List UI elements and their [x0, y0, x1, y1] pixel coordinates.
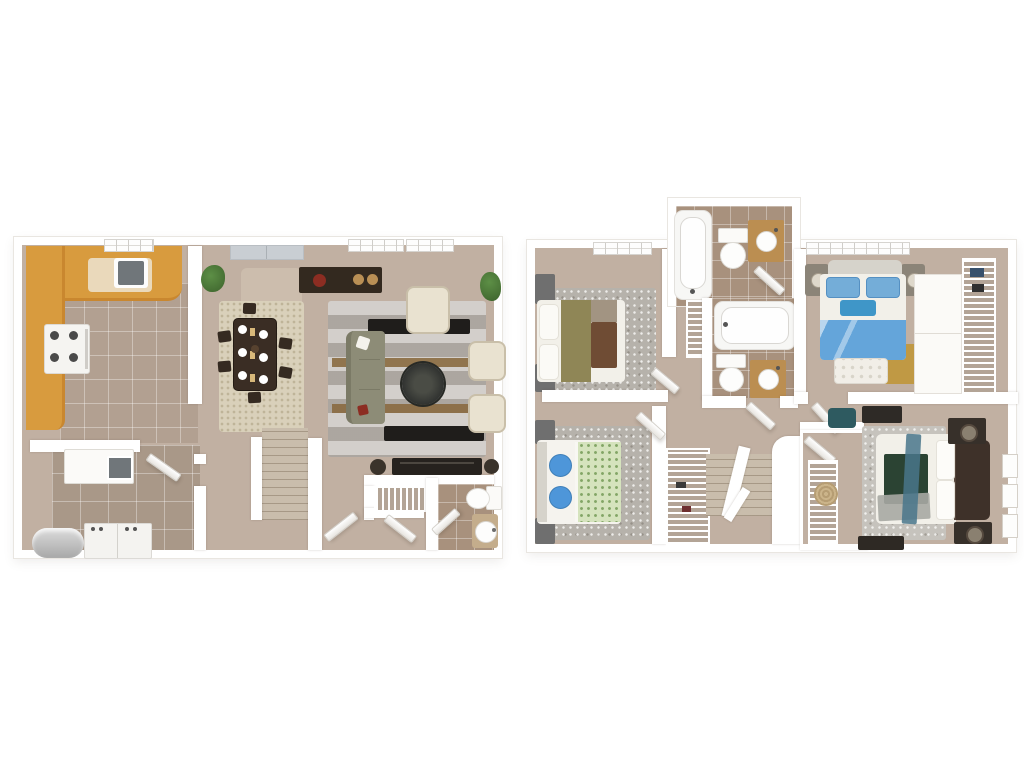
plate — [238, 348, 247, 357]
blue-blanket — [820, 320, 906, 360]
dresser — [858, 536, 904, 550]
dining-chair — [278, 337, 292, 350]
stove-burner — [69, 331, 78, 340]
napkin — [250, 328, 255, 336]
decor-jar — [367, 274, 378, 285]
taupe-accent-pillows — [591, 300, 617, 322]
tub-faucet — [723, 322, 728, 327]
lamp — [960, 424, 978, 442]
staircase-up — [262, 428, 308, 520]
sliding-glass-door — [230, 245, 304, 260]
plate — [259, 330, 268, 339]
folded-clothes — [970, 268, 984, 277]
bathtub-vertical — [674, 210, 712, 300]
utility-counter — [64, 449, 134, 484]
potted-plant-dining — [201, 265, 225, 292]
bathtub-horizontal — [714, 301, 796, 350]
bathtub-basin — [680, 217, 706, 289]
olive-blanket — [561, 300, 591, 382]
second-floor-plan — [527, 240, 1016, 552]
bedroom2-closet-wire-shelf — [962, 258, 996, 396]
appliance-knob — [133, 527, 137, 531]
bedroom1-bed — [537, 300, 625, 382]
armchair-right-2 — [468, 394, 506, 433]
teal-chair — [828, 408, 856, 428]
wall-stub — [794, 392, 808, 404]
stairwell-wall — [772, 436, 800, 544]
stove-burner — [69, 353, 78, 362]
bathtub-basin — [721, 307, 789, 344]
sink-faucet — [492, 528, 496, 532]
appliance-knob — [125, 527, 129, 531]
wall-frame — [1002, 484, 1018, 508]
living-console — [299, 267, 382, 293]
dining-chair — [278, 366, 293, 379]
bedroom1-window — [593, 242, 652, 255]
utility-sink — [107, 456, 133, 480]
laundry-hall-wall — [194, 486, 206, 550]
bed-pillow — [539, 344, 559, 380]
stove — [44, 324, 90, 374]
bathroom2-vanity — [750, 360, 786, 398]
teal-accent-pillow — [840, 300, 876, 316]
round-coffee-table — [402, 363, 444, 405]
bedroom3-bed — [537, 440, 621, 524]
vanity-faucet — [776, 366, 780, 370]
shoes — [676, 482, 686, 488]
living-window-2 — [406, 239, 454, 252]
bath-hall-wall — [426, 478, 438, 550]
lamp — [966, 526, 984, 544]
plate — [238, 325, 247, 334]
hall-bathroom — [668, 198, 800, 306]
bed-pillow — [936, 480, 955, 520]
bedroom4-bed — [876, 432, 990, 526]
kitchen-sink-surround — [114, 258, 148, 288]
wall-frame — [1002, 454, 1018, 478]
blue-pillow — [866, 277, 900, 298]
kitchen-sink-basin — [118, 261, 144, 285]
toilet-bowl — [720, 242, 746, 269]
toilet-bowl — [719, 367, 744, 392]
bath2-bottom-wall-left — [702, 396, 746, 408]
blue-pillow — [549, 486, 572, 509]
appliance-knob — [91, 527, 95, 531]
bedroom2-bed — [820, 274, 906, 360]
folded-clothes — [972, 284, 984, 292]
speaker-stool-right — [484, 459, 499, 474]
tv-screen-edge — [400, 462, 474, 464]
bedroom2-headboard — [828, 260, 902, 275]
woven-basket — [814, 482, 838, 506]
bedroom4-headboard — [954, 440, 990, 520]
decor-jar — [353, 274, 364, 285]
blue-pillow — [549, 454, 572, 477]
sofa-cushion-seam — [359, 389, 380, 390]
wall-frame — [1002, 514, 1018, 538]
hall-closet-wire-shelf — [666, 448, 710, 546]
toilet-tank — [716, 354, 746, 368]
dining-chair — [218, 360, 232, 372]
toilet-bowl — [466, 488, 490, 509]
washer-dryer-divider — [117, 524, 118, 558]
bathroom-vanity — [748, 220, 784, 262]
bedroom2-window — [806, 242, 910, 255]
laundry-hall-wall-stub — [194, 454, 206, 464]
plate — [259, 375, 268, 384]
stove-burner — [50, 353, 59, 362]
centerpiece — [251, 345, 259, 353]
stove-burner — [50, 331, 59, 340]
potted-plant-living — [480, 272, 501, 301]
floor-plan-canvas — [0, 0, 1024, 778]
tub-faucet — [690, 289, 695, 294]
sofa — [346, 331, 385, 424]
blue-pillow — [826, 277, 860, 298]
plate — [259, 353, 268, 362]
armchair-right-1 — [468, 341, 506, 381]
stair-wall-right — [308, 438, 322, 550]
dining-chair — [217, 330, 231, 343]
appliance-knob — [99, 527, 103, 531]
green-floral-quilt — [575, 442, 621, 522]
stove-handle — [85, 329, 88, 369]
armchair-top — [406, 286, 450, 334]
living-window-1 — [348, 239, 404, 252]
throw-pillow-red — [357, 404, 369, 416]
dining-table — [234, 319, 276, 390]
vanity-sink — [758, 369, 779, 390]
vanity-sink — [756, 231, 777, 252]
bed-pillow — [539, 304, 559, 340]
first-floor-plan — [14, 237, 502, 558]
bedroom3-headboard — [537, 442, 547, 522]
bedroom4-nightstand-bottom — [954, 522, 992, 544]
bedroom4-nightstand-top — [948, 418, 986, 444]
sliding-door-divider — [266, 246, 267, 259]
decor-bowl — [313, 274, 326, 287]
napkin — [250, 374, 255, 382]
water-heater — [32, 528, 84, 558]
kitchen-dining-wall — [188, 246, 202, 404]
bed-pillow — [936, 440, 955, 480]
washer-dryer — [84, 523, 152, 559]
brown-throw — [591, 322, 617, 368]
dining-chair — [243, 303, 256, 314]
toilet-tank — [718, 228, 748, 243]
media-console-tv — [392, 458, 482, 475]
kitchen-window — [104, 239, 154, 252]
stair-wall-left — [251, 437, 262, 520]
throw-pillow-white — [355, 335, 370, 350]
bedroom1-bottom-wall — [542, 390, 668, 402]
closet-panel-divider — [915, 333, 961, 334]
plate — [238, 371, 247, 380]
sofa-cushion-seam — [359, 359, 380, 360]
pedestal-sink — [475, 521, 497, 543]
dark-media-unit — [862, 406, 902, 423]
vanity-faucet — [774, 228, 778, 232]
tufted-bench — [834, 358, 888, 384]
dining-chair — [248, 392, 262, 404]
shoes — [682, 506, 691, 512]
speaker-stool-left — [370, 459, 386, 475]
closet-door-panels — [914, 274, 962, 394]
